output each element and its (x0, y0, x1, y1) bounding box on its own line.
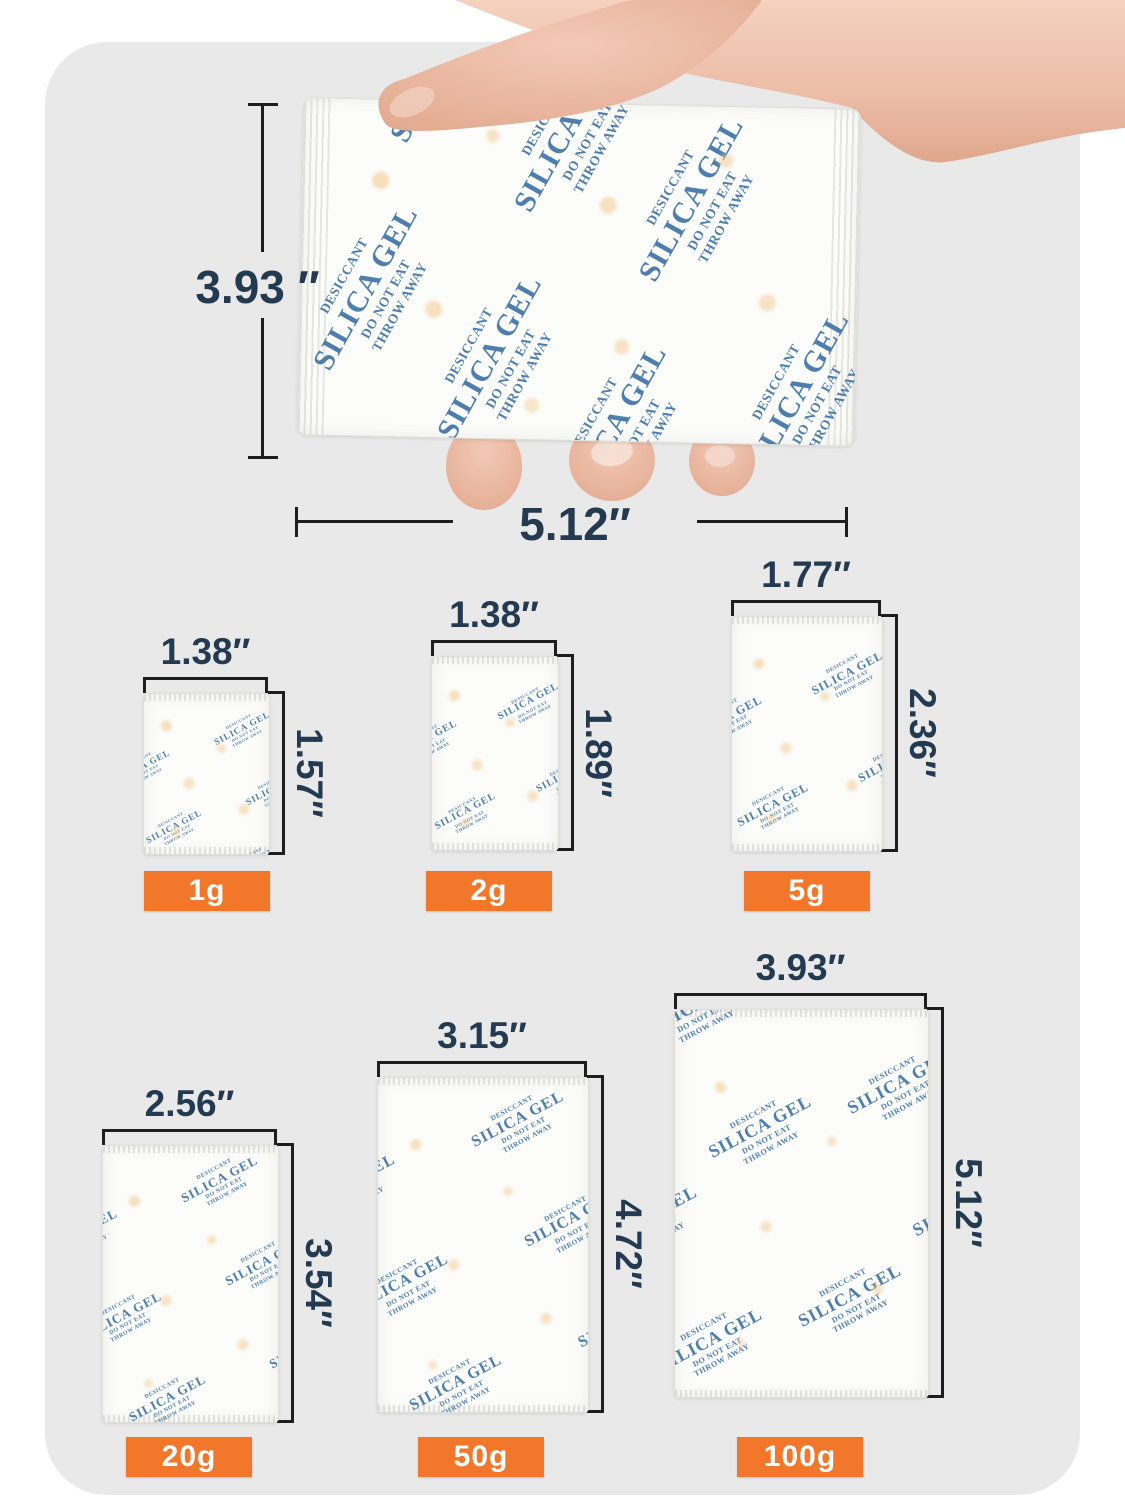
print-block: DESICCANTSILICA GELDO NOT EATTHROW AWAY (840, 1039, 929, 1135)
height-dimension-2g (557, 654, 574, 851)
fingernail (705, 445, 735, 467)
packet-print-pattern: DESICCANTSILICA GELDO NOT EATTHROW AWAYD… (431, 656, 559, 851)
print-block: DESICCANTSILICA GELDO NOT EATTHROW AWAY (211, 706, 270, 756)
width-dimension-5g (731, 600, 881, 616)
print-block: DESICCANTSILICA GELDO NOT EATTHROW AWAY (418, 263, 577, 447)
print-block: DESICCANTSILICA GELDO NOT EATTHROW AWAY (674, 1009, 759, 1057)
width-dimension-20g (102, 1129, 277, 1145)
print-block: DESICCANTSILICA GELDO NOT EATTHROW AWAY (518, 1181, 589, 1267)
packet-print-pattern: DESICCANTSILICA GELDO NOT EATTHROW AWAYD… (377, 1077, 589, 1413)
print-block: DESICCANTSILICA GELDO NOT EATTHROW AWAY (806, 643, 883, 708)
print-block: DESICCANTSILICA GELDO NOT EATTHROW AWAY (431, 787, 503, 842)
width-label-5g: 1.77″ (691, 554, 921, 596)
weight-badge-2g: 2g (426, 871, 552, 911)
height-dimension-20g (277, 1143, 294, 1423)
dim-tick (248, 456, 278, 459)
height-label-5g: 2.36″ (899, 616, 945, 850)
dim-tick (845, 507, 848, 537)
print-block: DESICCANTSILICA GELDO NOT EATTHROW AWAY (868, 1397, 929, 1398)
width-dimension-100g (674, 993, 927, 1009)
packet-group-20g: 2.56″ 3.54″ DESICCANTSILICA GELDO NOT EA… (102, 1145, 277, 1421)
packet-group-1g: 1.38″ 1.57″ DESICCANTSILICA GELDO NOT EA… (143, 693, 268, 853)
packet-print-pattern: DESICCANTSILICA GELDO NOT EATTHROW AWAYD… (731, 616, 883, 852)
print-block: DESICCANTSILICA GELDO NOT EATTHROW AWAY (543, 332, 702, 447)
print-block: DESICCANTSILICA GELDO NOT EATTHROW AWAY (233, 1414, 279, 1423)
height-dimension-5g (881, 614, 898, 852)
silica-gel-packet-100g: DESICCANTSILICA GELDO NOT EATTHROW AWAYD… (674, 1009, 929, 1398)
print-block: DESICCANTSILICA GELDO NOT EATTHROW AWAY (377, 1244, 459, 1330)
width-label-50g: 3.15″ (337, 1015, 627, 1057)
height-label-2g: 1.89″ (575, 656, 621, 849)
height-label-1g: 1.57″ (286, 693, 332, 853)
packet-print-pattern: DESICCANTSILICA GELDO NOT EATTHROW AWAYD… (102, 1145, 279, 1423)
print-block: DESICCANTSILICA GELDO NOT EATTHROW AWAY (102, 1201, 126, 1271)
print-block: DESICCANTSILICA GELDO NOT EATTHROW AWAY (377, 1144, 406, 1230)
width-dimension-2g (431, 640, 557, 656)
packet-print-pattern: DESICCANTSILICA GELDO NOT EATTHROW AWAYD… (674, 1009, 929, 1398)
print-block: DESICCANTSILICA GELDO NOT EATTHROW AWAY (143, 744, 177, 794)
print-block: DESICCANTSILICA GELDO NOT EATTHROW AWAY (143, 693, 145, 734)
print-block: DESICCANTSILICA GELDO NOT EATTHROW AWAY (494, 677, 559, 732)
width-label-100g: 3.93″ (634, 947, 967, 989)
silica-gel-packet-50g: DESICCANTSILICA GELDO NOT EATTHROW AWAYD… (377, 1077, 589, 1413)
thumb (0, 0, 1125, 260)
dim-line (697, 520, 847, 523)
height-label-50g: 4.72″ (605, 1077, 651, 1411)
hero-width-label: 5.12″ (455, 497, 695, 551)
width-label-20g: 2.56″ (62, 1083, 317, 1125)
silica-gel-packet-2g: DESICCANTSILICA GELDO NOT EATTHROW AWAYD… (431, 656, 559, 851)
packet-print-pattern: DESICCANTSILICA GELDO NOT EATTHROW AWAYD… (143, 693, 270, 855)
product-dimension-infographic: { "print": { "line1": "DESICCANT", "line… (0, 0, 1125, 1500)
print-block: DESICCANTSILICA GELDO NOT EATTHROW AWAY (571, 1281, 589, 1367)
silica-gel-packet-1g: DESICCANTSILICA GELDO NOT EATTHROW AWAYD… (143, 693, 270, 855)
print-block: DESICCANTSILICA GELDO NOT EATTHROW AWAY (791, 1252, 914, 1348)
width-dimension-1g (143, 677, 268, 693)
width-label-1g: 1.38″ (103, 631, 308, 673)
print-block: DESICCANTSILICA GELDO NOT EATTHROW AWAY (179, 693, 245, 696)
silica-gel-packet-20g: DESICCANTSILICA GELDO NOT EATTHROW AWAYD… (102, 1145, 279, 1423)
width-dimension-50g (377, 1061, 587, 1077)
print-block: DESICCANTSILICA GELDO NOT EATTHROW AWAY (220, 1231, 279, 1301)
height-dimension-50g (587, 1075, 604, 1413)
weight-badge-20g: 20g (126, 1437, 252, 1477)
print-block: DESICCANTSILICA GELDO NOT EATTHROW AWAY (852, 731, 883, 796)
weight-badge-1g: 1g (144, 871, 270, 911)
print-block: DESICCANTSILICA GELDO NOT EATTHROW AWAY (143, 804, 208, 854)
print-block: DESICCANTSILICA GELDO NOT EATTHROW AWAY (674, 1174, 710, 1270)
print-block: DESICCANTSILICA GELDO NOT EATTHROW AWAY (732, 775, 817, 840)
print-block: DESICCANTSILICA GELDO NOT EATTHROW AWAY (701, 1083, 824, 1179)
print-block: DESICCANTSILICA GELDO NOT EATTHROW AWAY (674, 1296, 775, 1392)
weight-badge-5g: 5g (744, 871, 870, 911)
print-block: DESICCANTSILICA GELDO NOT EATTHROW AWAY (759, 616, 844, 621)
hero-height-label: 3.93 ″ (175, 260, 340, 314)
print-block: DESICCANTSILICA GELDO NOT EATTHROW AWAY (175, 1148, 266, 1218)
weight-badge-100g: 100g (737, 1437, 863, 1477)
dim-line (261, 104, 264, 252)
print-block: DESICCANTSILICA GELDO NOT EATTHROW AWAY (464, 1081, 574, 1167)
packet-group-2g: 1.38″ 1.89″ DESICCANTSILICA GELDO NOT EA… (431, 656, 557, 849)
print-block: DESICCANTSILICA GELDO NOT EATTHROW AWAY (731, 687, 770, 752)
print-block: DESICCANTSILICA GELDO NOT EATTHROW AWAY (243, 766, 270, 816)
print-block: DESICCANTSILICA GELDO NOT EATTHROW AWAY (221, 839, 270, 855)
silica-gel-packet-5g: DESICCANTSILICA GELDO NOT EATTHROW AWAYD… (731, 616, 883, 852)
height-dimension-1g (268, 691, 285, 855)
print-block: DESICCANTSILICA GELDO NOT EATTHROW AWAY (532, 750, 559, 805)
height-label-100g: 5.12″ (945, 1009, 991, 1396)
width-label-2g: 1.38″ (391, 594, 597, 636)
packet-group-50g: 3.15″ 4.72″ DESICCANTSILICA GELDO NOT EA… (377, 1077, 587, 1411)
packet-group-100g: 3.93″ 5.12″ DESICCANTSILICA GELDO NOT EA… (674, 1009, 927, 1396)
weight-badge-50g: 50g (418, 1437, 544, 1477)
dim-line (295, 520, 453, 523)
print-block: DESICCANTSILICA GELDO NOT EATTHROW AWAY (402, 1344, 512, 1413)
print-block: DESICCANTSILICA GELDO NOT EATTHROW AWAY (905, 1161, 929, 1257)
print-block: DESICCANTSILICA GELDO NOT EATTHROW AWAY (264, 1314, 279, 1384)
height-label-20g: 3.54″ (295, 1145, 341, 1421)
packet-group-5g: 1.77″ 2.36″ DESICCANTSILICA GELDO NOT EA… (731, 616, 881, 850)
print-block: DESICCANTSILICA GELDO NOT EATTHROW AWAY (535, 1403, 589, 1413)
print-block: DESICCANTSILICA GELDO NOT EATTHROW AWAY (431, 715, 465, 770)
print-block: DESICCANTSILICA GELDO NOT EATTHROW AWAY (123, 1367, 214, 1423)
thumb-shape (379, 0, 762, 131)
print-block: DESICCANTSILICA GELDO NOT EATTHROW AWAY (102, 1284, 170, 1354)
height-dimension-100g (927, 1007, 944, 1398)
print-block: DESICCANTSILICA GELDO NOT EATTHROW AWAY (455, 656, 527, 660)
dim-line (261, 318, 264, 458)
